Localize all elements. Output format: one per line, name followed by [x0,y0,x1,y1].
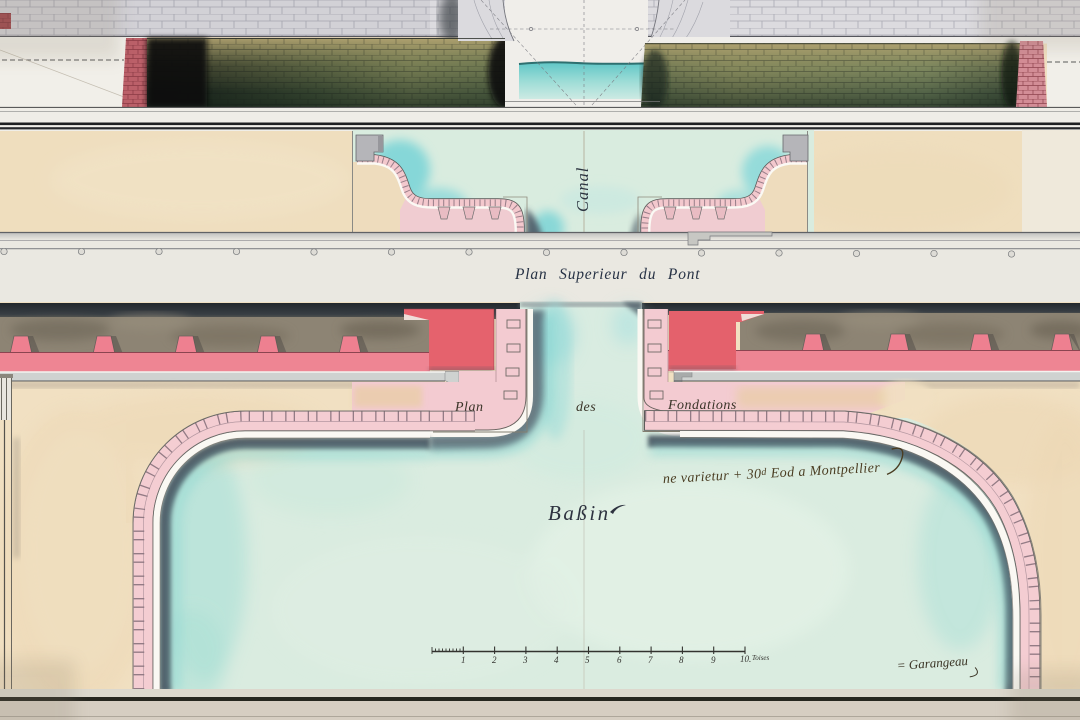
svg-text:Plan Superieur du Pont: Plan Superieur du Pont [514,266,700,283]
svg-text:8: 8 [679,655,684,665]
svg-text:Baßin: Baßin [548,501,611,525]
svg-text:4: 4 [554,655,559,665]
svg-text:Toises: Toises [752,654,770,662]
svg-text:10.: 10. [740,654,751,664]
svg-text:5: 5 [585,655,590,665]
svg-text:des: des [576,400,596,415]
svg-text:2: 2 [492,655,497,665]
svg-text:Canal: Canal [573,167,592,212]
svg-text:3: 3 [522,655,528,665]
svg-text:6: 6 [617,655,622,665]
svg-text:7: 7 [648,655,653,665]
svg-text:1: 1 [461,655,466,665]
svg-text:9: 9 [711,655,716,665]
